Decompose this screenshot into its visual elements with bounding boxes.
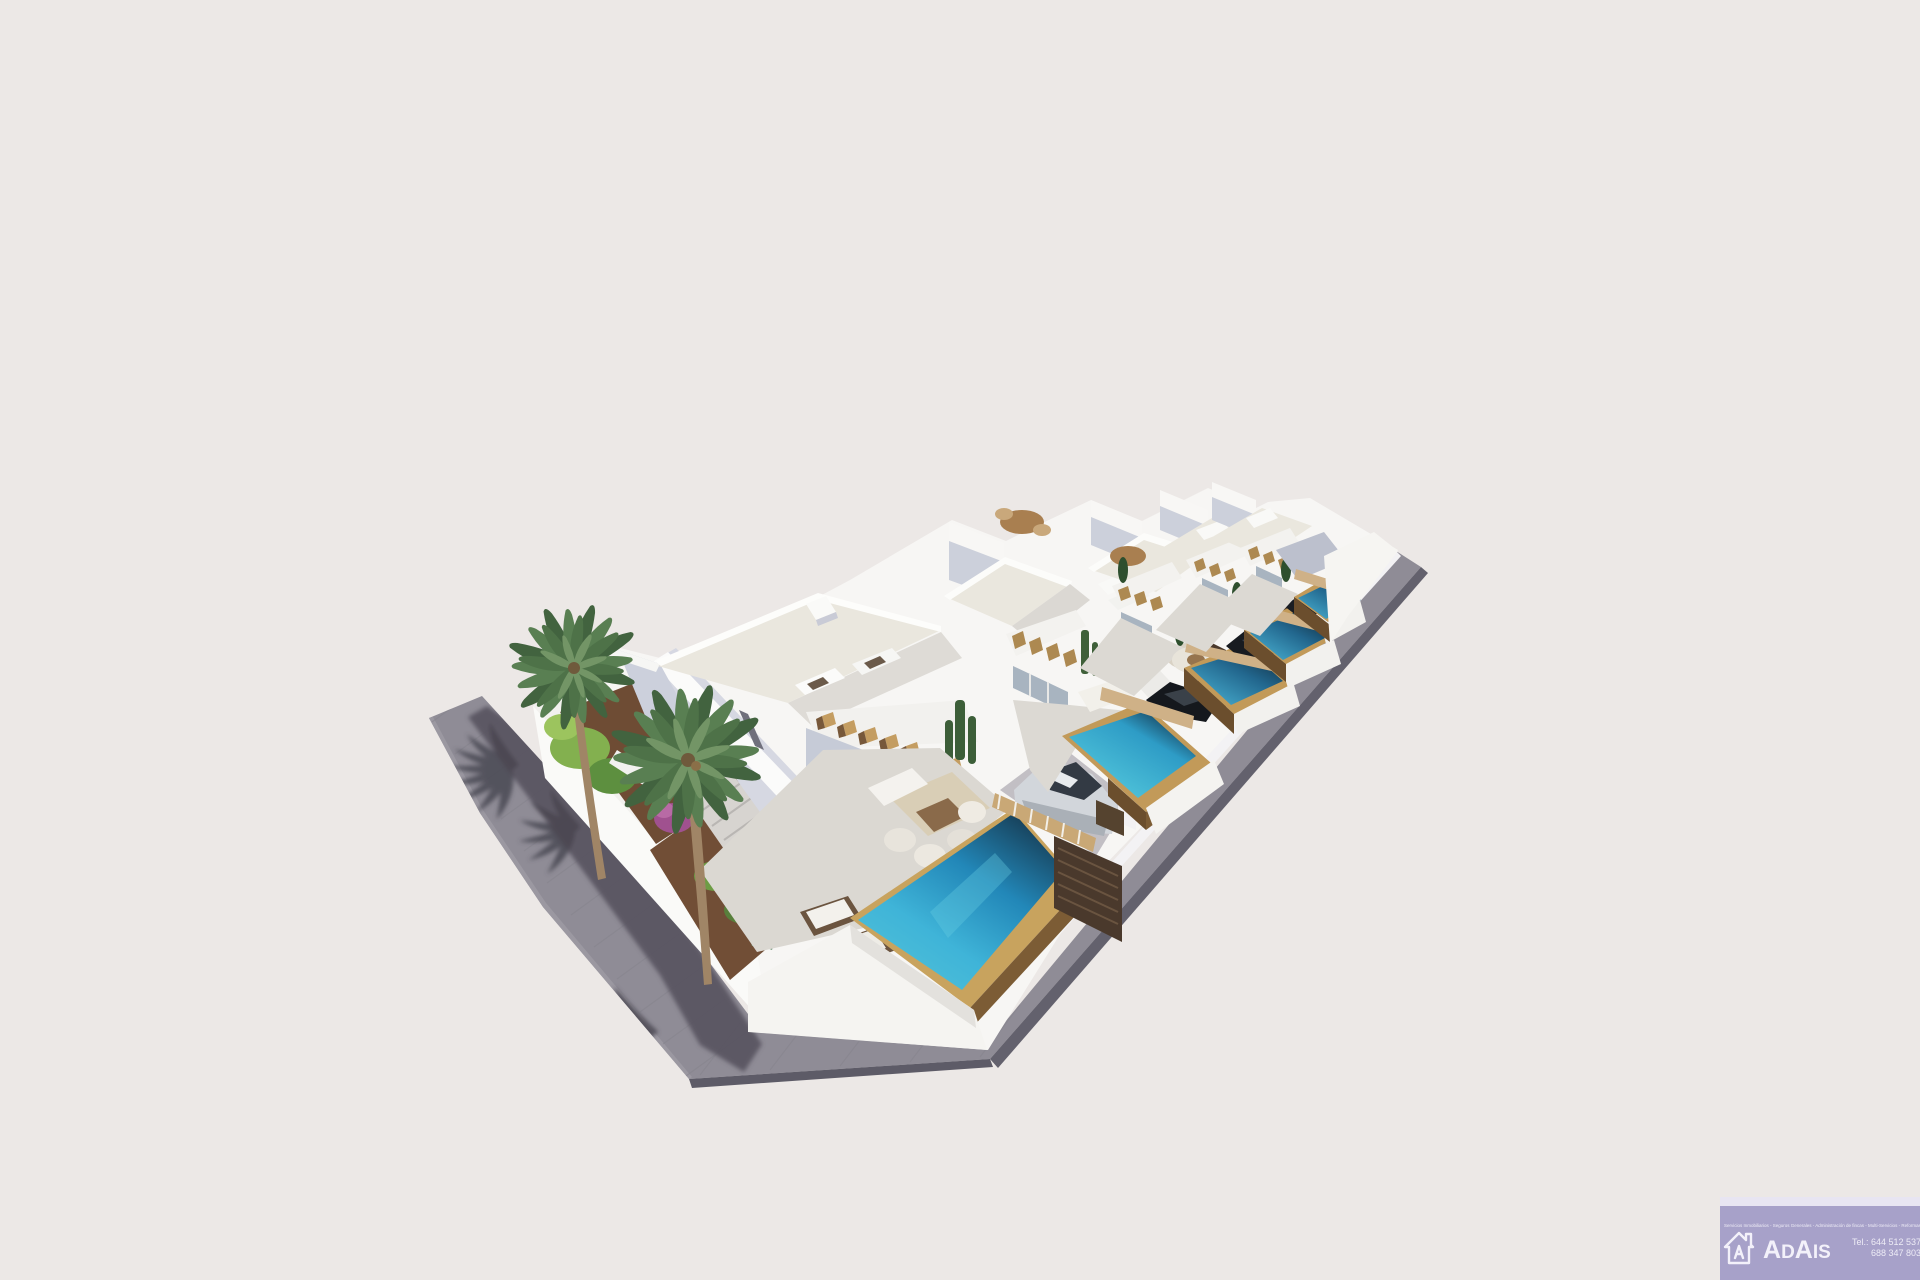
svg-text:Servicios Inmobiliarios - Segu: Servicios Inmobiliarios - Seguros Genera…	[1724, 1223, 1920, 1228]
svg-text:688 347 803: 688 347 803	[1871, 1248, 1920, 1258]
svg-text:Tel.: 644 512 537: Tel.: 644 512 537	[1852, 1237, 1920, 1247]
